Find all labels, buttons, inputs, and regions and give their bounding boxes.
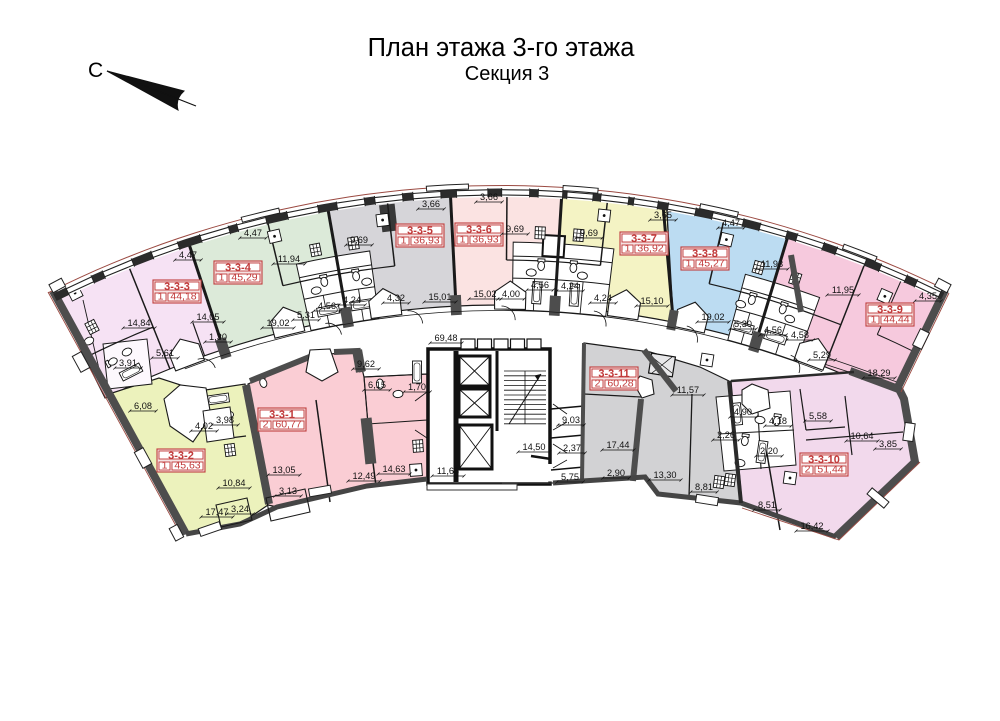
- svg-text:5,75: 5,75: [561, 472, 579, 482]
- svg-text:1: 1: [686, 258, 692, 270]
- svg-text:1: 1: [871, 314, 877, 326]
- svg-text:17,44: 17,44: [607, 440, 630, 450]
- svg-text:11,94: 11,94: [278, 254, 300, 264]
- svg-text:Секция 3: Секция 3: [465, 63, 549, 85]
- svg-text:1: 1: [401, 235, 407, 247]
- svg-text:45,63: 45,63: [174, 460, 200, 472]
- svg-text:14,50: 14,50: [523, 442, 546, 452]
- svg-text:4,02: 4,02: [195, 421, 213, 431]
- svg-text:14,05: 14,05: [197, 312, 220, 322]
- svg-text:1,30: 1,30: [209, 332, 227, 342]
- svg-text:4,24: 4,24: [343, 295, 361, 305]
- svg-text:4,56: 4,56: [764, 325, 782, 335]
- svg-text:3,98: 3,98: [216, 415, 234, 425]
- svg-text:1: 1: [625, 243, 631, 255]
- svg-text:9,69: 9,69: [580, 228, 598, 238]
- svg-text:44,18: 44,18: [170, 291, 196, 303]
- svg-text:4,47: 4,47: [244, 228, 262, 238]
- svg-text:18,29: 18,29: [868, 368, 891, 378]
- svg-text:8,51: 8,51: [758, 500, 776, 510]
- svg-text:2,26: 2,26: [717, 430, 735, 440]
- svg-text:4,00: 4,00: [502, 289, 520, 299]
- svg-text:4,56: 4,56: [318, 301, 336, 311]
- svg-text:6,08: 6,08: [134, 401, 152, 411]
- svg-text:3,65: 3,65: [654, 210, 672, 220]
- svg-text:45,27: 45,27: [698, 258, 724, 270]
- svg-text:3,24: 3,24: [231, 504, 249, 514]
- svg-text:11,95: 11,95: [832, 285, 854, 295]
- svg-text:2: 2: [595, 378, 601, 390]
- svg-text:16,42: 16,42: [801, 521, 824, 531]
- svg-text:5,58: 5,58: [809, 411, 827, 421]
- svg-text:1: 1: [158, 291, 164, 303]
- svg-text:2,90: 2,90: [607, 468, 625, 478]
- svg-text:10,64: 10,64: [851, 431, 874, 441]
- svg-text:5,30: 5,30: [734, 319, 752, 329]
- svg-text:1: 1: [460, 234, 466, 246]
- svg-text:1: 1: [162, 460, 168, 472]
- svg-text:11,68: 11,68: [437, 466, 459, 476]
- svg-text:4,18: 4,18: [769, 416, 787, 426]
- svg-text:44,44: 44,44: [883, 314, 909, 326]
- svg-text:9,69: 9,69: [506, 224, 524, 234]
- svg-text:11,57: 11,57: [677, 385, 699, 395]
- svg-text:4,58: 4,58: [791, 330, 809, 340]
- svg-text:4,32: 4,32: [387, 293, 405, 303]
- svg-text:13,30: 13,30: [654, 470, 677, 480]
- svg-text:36,92: 36,92: [637, 243, 663, 255]
- svg-text:4,47: 4,47: [722, 218, 740, 228]
- svg-text:11,93: 11,93: [761, 259, 783, 269]
- svg-text:4,24: 4,24: [594, 293, 612, 303]
- svg-text:3,66: 3,66: [422, 199, 440, 209]
- svg-text:4,56: 4,56: [531, 280, 549, 290]
- svg-text:19,02: 19,02: [702, 312, 725, 322]
- svg-text:15,01: 15,01: [429, 292, 452, 302]
- svg-text:15,02: 15,02: [474, 289, 497, 299]
- svg-text:3,13: 3,13: [279, 486, 297, 496]
- svg-text:8,81: 8,81: [695, 482, 713, 492]
- svg-text:9,03: 9,03: [562, 415, 580, 425]
- svg-text:1: 1: [219, 272, 225, 284]
- svg-text:С: С: [88, 59, 103, 82]
- svg-text:10,84: 10,84: [223, 478, 246, 488]
- svg-text:60,77: 60,77: [275, 419, 301, 431]
- svg-text:1,70: 1,70: [408, 382, 426, 392]
- svg-text:4,35: 4,35: [919, 291, 937, 301]
- svg-text:5,29: 5,29: [813, 350, 831, 360]
- svg-text:69,48: 69,48: [435, 333, 458, 343]
- svg-text:3,66: 3,66: [480, 192, 498, 202]
- svg-text:6,15: 6,15: [368, 380, 386, 390]
- svg-text:3,91: 3,91: [119, 358, 137, 368]
- svg-text:3,85: 3,85: [879, 439, 897, 449]
- svg-text:60,28: 60,28: [607, 378, 633, 390]
- svg-text:9,69: 9,69: [350, 235, 368, 245]
- svg-text:2: 2: [263, 419, 269, 431]
- svg-text:12,49: 12,49: [353, 471, 376, 481]
- svg-text:19,02: 19,02: [267, 318, 290, 328]
- svg-text:2,20: 2,20: [760, 446, 778, 456]
- svg-text:13,05: 13,05: [273, 465, 296, 475]
- svg-text:2: 2: [805, 464, 811, 476]
- svg-text:2,37: 2,37: [563, 443, 581, 453]
- svg-text:14,84: 14,84: [128, 318, 151, 328]
- svg-text:5,31: 5,31: [297, 310, 315, 320]
- svg-text:4,47: 4,47: [179, 250, 197, 260]
- svg-text:36,93: 36,93: [472, 234, 498, 246]
- svg-text:14,63: 14,63: [383, 464, 406, 474]
- svg-text:36,93: 36,93: [413, 235, 439, 247]
- svg-text:4,24: 4,24: [561, 281, 579, 291]
- svg-text:15,10: 15,10: [641, 296, 664, 306]
- svg-text:План этажа 3-го этажа: План этажа 3-го этажа: [368, 34, 636, 62]
- svg-text:17,47: 17,47: [206, 507, 229, 517]
- svg-text:51,44: 51,44: [817, 464, 843, 476]
- svg-text:5,61: 5,61: [156, 348, 174, 358]
- svg-text:9,62: 9,62: [357, 359, 375, 369]
- svg-text:45,29: 45,29: [231, 272, 257, 284]
- svg-text:4,90: 4,90: [734, 407, 752, 417]
